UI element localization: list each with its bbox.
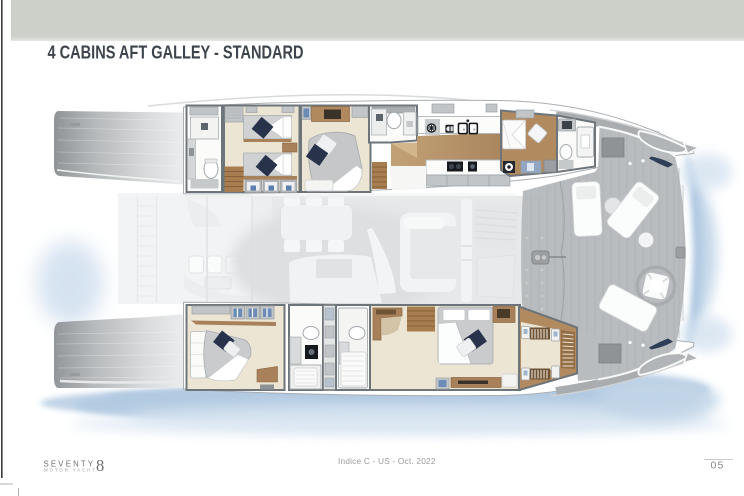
svg-text:MOTOR YACHT: MOTOR YACHT (44, 468, 97, 473)
svg-text:4 CABINS AFT GALLEY - STANDARD: 4 CABINS AFT GALLEY - STANDARD (48, 43, 304, 63)
svg-text:Indice C - US - Oct. 2022: Indice C - US - Oct. 2022 (338, 456, 436, 466)
svg-text:05: 05 (711, 460, 725, 472)
svg-text:8: 8 (96, 456, 104, 475)
